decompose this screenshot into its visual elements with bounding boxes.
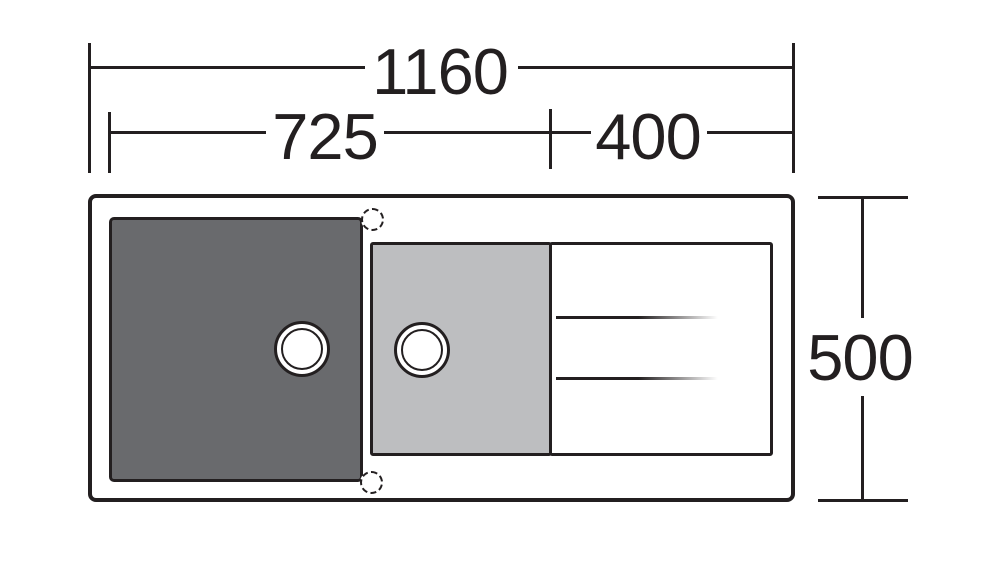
dimension-line-overall-width-left bbox=[90, 66, 365, 69]
dimension-label-bowl-section-width: 725 bbox=[258, 104, 392, 170]
extension-line-right bbox=[792, 43, 795, 173]
drain-hole-icon bbox=[274, 321, 330, 377]
dimension-label-overall-depth: 500 bbox=[792, 325, 928, 391]
tap-hole-icon bbox=[360, 471, 383, 494]
sink-dimension-drawing: 1160 725 400 500 bbox=[0, 0, 1000, 565]
drain-hole-icon bbox=[394, 322, 450, 378]
dimension-line-drainer-right bbox=[707, 131, 793, 134]
drainer-area bbox=[549, 242, 773, 456]
dimension-line-depth-upper bbox=[861, 197, 864, 318]
tap-hole-icon bbox=[361, 208, 384, 231]
drain-hole-inner-ring bbox=[401, 329, 443, 371]
dimension-line-depth-lower bbox=[861, 396, 864, 500]
dimension-line-overall-width-right bbox=[518, 66, 793, 69]
drainer-groove-line bbox=[556, 316, 728, 319]
dimension-line-bowl-right bbox=[384, 131, 550, 134]
dimension-label-drainer-width: 400 bbox=[581, 104, 715, 170]
dimension-line-bowl-left bbox=[110, 131, 266, 134]
drainer-groove-line bbox=[556, 377, 728, 380]
dimension-tick-middle bbox=[549, 109, 552, 169]
drain-hole-inner-ring bbox=[281, 328, 323, 370]
dimension-label-overall-width: 1160 bbox=[360, 39, 520, 105]
dimension-tick-bowl-left bbox=[108, 112, 111, 173]
extension-line-left bbox=[88, 43, 91, 173]
